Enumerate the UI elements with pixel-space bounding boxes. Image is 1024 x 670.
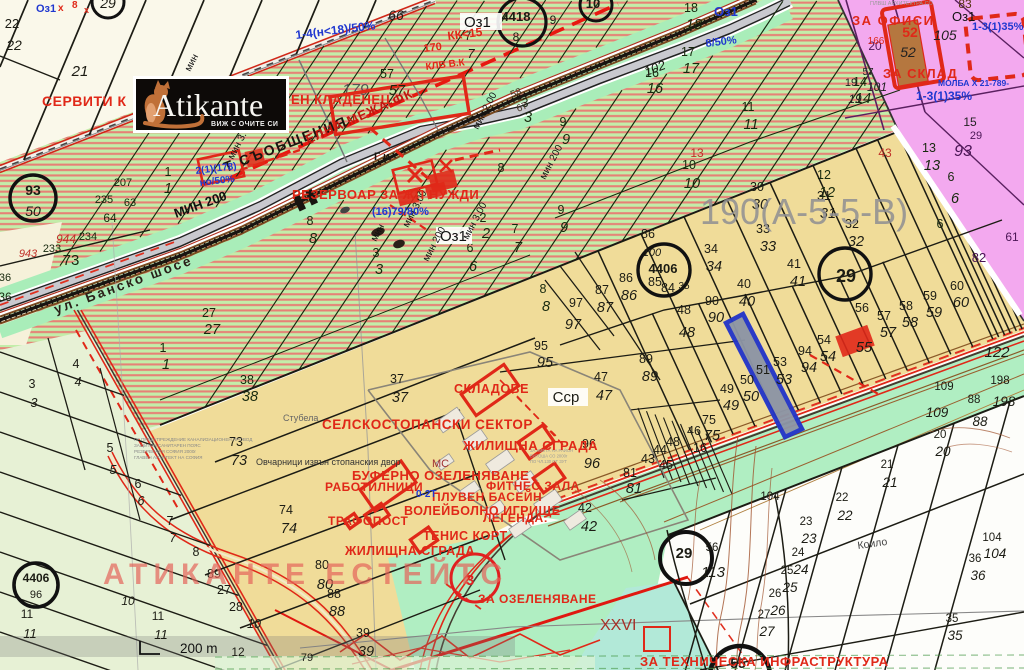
svg-text:3: 3 <box>31 396 38 410</box>
svg-text:57: 57 <box>880 325 897 341</box>
svg-text:7: 7 <box>467 46 475 61</box>
svg-text:22: 22 <box>836 508 853 523</box>
svg-text:19: 19 <box>845 77 857 89</box>
svg-text:86: 86 <box>619 271 633 285</box>
svg-text:42: 42 <box>578 501 592 515</box>
svg-text:Сср: Сср <box>553 389 580 406</box>
svg-text:27: 27 <box>758 609 771 621</box>
svg-text:55: 55 <box>856 340 873 356</box>
svg-text:27: 27 <box>202 306 216 320</box>
svg-text:93: 93 <box>25 182 41 198</box>
svg-text:СЕРВИТИ К: СЕРВИТИ К <box>42 93 127 109</box>
svg-text:47: 47 <box>594 370 608 384</box>
svg-text:50: 50 <box>740 373 754 387</box>
svg-text:34: 34 <box>704 242 718 256</box>
svg-text:100: 100 <box>643 247 662 259</box>
svg-text:7: 7 <box>514 240 523 256</box>
svg-text:88: 88 <box>972 414 988 429</box>
svg-text:4406: 4406 <box>649 261 678 276</box>
svg-text:16: 16 <box>647 81 664 97</box>
svg-text:23: 23 <box>800 516 813 528</box>
svg-text:22: 22 <box>5 37 22 53</box>
svg-text:95: 95 <box>534 339 548 353</box>
svg-text:57: 57 <box>877 309 891 323</box>
svg-text:93: 93 <box>954 143 972 160</box>
svg-text:24: 24 <box>792 547 805 559</box>
svg-text:234: 234 <box>79 231 97 243</box>
svg-text:СКЛАДОВЕ: СКЛАДОВЕ <box>454 382 529 396</box>
svg-text:ВИЖ С ОЧИТЕ СИ: ВИЖ С ОЧИТЕ СИ <box>211 121 278 128</box>
svg-text:60: 60 <box>953 295 969 311</box>
svg-text:12: 12 <box>817 168 831 182</box>
svg-text:Оз1: Оз1 <box>36 3 56 15</box>
svg-text:х: х <box>58 3 64 14</box>
svg-text:1: 1 <box>162 357 170 373</box>
svg-text:39: 39 <box>358 644 374 660</box>
svg-text:18: 18 <box>684 1 698 15</box>
svg-text:24: 24 <box>792 562 808 577</box>
svg-text:54: 54 <box>820 349 836 365</box>
svg-text:46: 46 <box>687 424 701 438</box>
svg-text:61: 61 <box>1005 230 1019 244</box>
svg-text:8: 8 <box>193 545 200 559</box>
svg-text:21: 21 <box>71 63 89 80</box>
svg-text:74: 74 <box>281 521 297 537</box>
svg-text:53: 53 <box>773 355 787 369</box>
svg-text:32: 32 <box>848 234 864 250</box>
svg-text:26: 26 <box>769 588 782 600</box>
svg-text:86: 86 <box>641 227 655 241</box>
svg-text:3: 3 <box>524 110 532 126</box>
svg-text:59: 59 <box>923 289 937 303</box>
svg-text:12: 12 <box>231 645 245 659</box>
svg-text:21: 21 <box>881 459 894 471</box>
svg-text:82: 82 <box>972 250 986 265</box>
svg-text:17: 17 <box>681 45 695 59</box>
svg-text:53: 53 <box>776 372 792 388</box>
svg-text:50: 50 <box>743 389 759 405</box>
svg-text:41: 41 <box>790 274 806 290</box>
svg-text:190(А-5-5-В): 190(А-5-5-В) <box>700 191 908 232</box>
svg-text:94: 94 <box>801 360 817 376</box>
svg-text:198: 198 <box>993 394 1016 409</box>
svg-text:22: 22 <box>836 492 849 504</box>
svg-text:16: 16 <box>693 441 707 455</box>
svg-text:23: 23 <box>800 531 817 546</box>
svg-text:200 m: 200 m <box>180 641 218 656</box>
svg-text:81: 81 <box>626 481 642 497</box>
svg-text:Стубела: Стубела <box>283 413 318 423</box>
svg-text:10: 10 <box>682 158 696 172</box>
svg-text:4418: 4418 <box>502 9 531 24</box>
svg-text:9: 9 <box>560 220 568 236</box>
svg-text:ЖИЛИЩНА СГРАДА: ЖИЛИЩНА СГРАДА <box>462 438 598 453</box>
svg-text:РЕЗЕРВОАРИ СОФИЯ 2000г: РЕЗЕРВОАРИ СОФИЯ 2000г <box>134 449 196 454</box>
svg-text:96: 96 <box>30 589 42 601</box>
svg-text:22: 22 <box>5 16 19 31</box>
svg-text:ЗА ТЕХНИЧЕСКА ИНФРАСТРУКТУРА: ЗА ТЕХНИЧЕСКА ИНФРАСТРУКТУРА <box>640 654 889 669</box>
svg-text:ВИТОША СО 2000г: ВИТОША СО 2000г <box>530 454 568 459</box>
svg-text:37: 37 <box>392 390 409 406</box>
svg-text:6: 6 <box>135 477 142 491</box>
svg-text:11: 11 <box>23 626 37 641</box>
svg-text:35: 35 <box>678 281 690 292</box>
svg-text:88: 88 <box>329 604 345 620</box>
svg-text:66: 66 <box>388 7 404 23</box>
svg-text:51: 51 <box>756 363 770 377</box>
svg-text:81: 81 <box>623 466 637 480</box>
svg-text:6: 6 <box>937 217 944 231</box>
svg-text:ТРАФОПОСТ: ТРАФОПОСТ <box>328 514 409 528</box>
svg-text:9: 9 <box>560 115 567 129</box>
svg-text:4: 4 <box>75 375 82 389</box>
svg-text:44: 44 <box>653 443 667 457</box>
svg-text:ПЛВШ АРХИТЕКТРА СО: ПЛВШ АРХИТЕКТРА СО <box>870 1 933 7</box>
svg-text:79: 79 <box>301 652 313 664</box>
svg-text:56: 56 <box>855 301 869 315</box>
svg-text:7: 7 <box>512 222 519 236</box>
svg-text:57: 57 <box>380 67 394 81</box>
svg-text:Ги: Ги <box>374 151 393 163</box>
svg-text:57: 57 <box>862 67 874 78</box>
svg-text:6: 6 <box>469 259 478 275</box>
svg-text:4: 4 <box>73 357 80 371</box>
svg-text:89: 89 <box>639 352 653 366</box>
svg-text:1-3(1)35%: 1-3(1)35% <box>916 89 972 103</box>
svg-text:36: 36 <box>0 290 12 304</box>
svg-text:9: 9 <box>562 132 570 148</box>
svg-text:4406: 4406 <box>23 571 50 585</box>
svg-text:96: 96 <box>584 456 601 472</box>
svg-text:38: 38 <box>242 389 258 405</box>
svg-text:198: 198 <box>990 375 1009 387</box>
svg-text:944: 944 <box>56 232 76 246</box>
svg-text:Atikante: Atikante <box>153 87 263 123</box>
svg-text:6: 6 <box>138 494 145 508</box>
svg-text:ГЛАВЕН АРХИТЕКТ НА СОФИЯ: ГЛАВЕН АРХИТЕКТ НА СОФИЯ <box>134 455 203 460</box>
svg-text:50: 50 <box>25 203 41 219</box>
svg-text:166: 166 <box>868 36 885 47</box>
svg-text:0-2Т: 0-2Т <box>416 489 437 500</box>
svg-text:37: 37 <box>390 372 404 386</box>
svg-text:943: 943 <box>19 248 38 260</box>
svg-text:11: 11 <box>742 100 755 114</box>
svg-text:89: 89 <box>642 369 658 385</box>
svg-text:РАБОТИЛНИЦИ: РАБОТИЛНИЦИ <box>325 480 423 494</box>
svg-text:49: 49 <box>723 398 739 414</box>
svg-text:88: 88 <box>968 394 981 406</box>
svg-text:101: 101 <box>867 80 887 94</box>
svg-text:48: 48 <box>679 325 695 341</box>
svg-text:86: 86 <box>621 288 638 304</box>
svg-text:ЗА ЖП НУЖДИ: ЗА ЖП НУЖДИ <box>380 187 479 202</box>
svg-text:48: 48 <box>666 435 680 449</box>
svg-text:33: 33 <box>760 239 776 255</box>
svg-text:25: 25 <box>781 565 794 577</box>
svg-text:АТИКАНТЕ ЕСТЕЙТС: АТИКАНТЕ ЕСТЕЙТС <box>103 557 508 591</box>
svg-text:54: 54 <box>817 333 831 347</box>
svg-text:109: 109 <box>926 405 949 420</box>
svg-text:90: 90 <box>708 310 724 326</box>
svg-text:95: 95 <box>537 355 554 371</box>
svg-text:1: 1 <box>164 181 172 197</box>
svg-text:ЗА ОЗЕЛЕНЯВАНЕ: ЗА ОЗЕЛЕНЯВАНЕ <box>478 592 597 606</box>
svg-text:97: 97 <box>569 296 583 310</box>
svg-text:47: 47 <box>596 388 613 404</box>
svg-text:3: 3 <box>375 262 383 278</box>
svg-text:8: 8 <box>498 161 505 175</box>
svg-text:8: 8 <box>542 299 550 315</box>
svg-text:13: 13 <box>922 141 936 155</box>
svg-text:17: 17 <box>683 61 700 77</box>
svg-text:97: 97 <box>565 317 582 333</box>
svg-text:29: 29 <box>99 0 116 11</box>
svg-text:73: 73 <box>63 252 80 269</box>
svg-text:56: 56 <box>706 542 719 554</box>
svg-text:(16)79/80%: (16)79/80% <box>372 206 429 218</box>
svg-text:2: 2 <box>481 226 490 242</box>
svg-text:36: 36 <box>0 272 11 284</box>
svg-text:49: 49 <box>720 382 734 396</box>
svg-text:15: 15 <box>963 115 977 129</box>
svg-text:8: 8 <box>309 231 317 247</box>
svg-text:10: 10 <box>684 176 700 192</box>
svg-text:45: 45 <box>659 458 673 472</box>
svg-text:8: 8 <box>307 214 314 228</box>
svg-text:ЖИЛИЩНА СГРАДА: ЖИЛИЩНА СГРАДА <box>344 544 475 558</box>
svg-text:43: 43 <box>878 146 892 160</box>
svg-text:11: 11 <box>152 609 165 623</box>
svg-text:3: 3 <box>373 246 380 260</box>
svg-text:104: 104 <box>984 546 1007 561</box>
svg-text:41: 41 <box>787 257 801 271</box>
svg-text:5: 5 <box>107 441 114 455</box>
svg-text:20: 20 <box>934 429 947 441</box>
svg-text:18: 18 <box>686 17 702 33</box>
svg-text:13: 13 <box>690 146 704 160</box>
svg-text:38: 38 <box>240 373 254 387</box>
svg-text:104: 104 <box>760 491 780 503</box>
svg-text:29: 29 <box>836 266 856 286</box>
svg-text:10: 10 <box>586 0 600 11</box>
svg-text:7: 7 <box>170 531 178 545</box>
svg-text:75: 75 <box>702 413 716 427</box>
svg-text:5: 5 <box>110 463 117 477</box>
svg-text:105: 105 <box>933 27 957 43</box>
svg-text:1-3(1)35%: 1-3(1)35% <box>972 21 1024 33</box>
svg-text:11: 11 <box>743 117 758 133</box>
svg-text:10: 10 <box>121 594 135 608</box>
svg-text:84: 84 <box>661 281 675 295</box>
svg-text:10: 10 <box>247 617 261 631</box>
svg-text:40: 40 <box>737 277 751 291</box>
svg-text:МОЛБА X 21-789-: МОЛБА X 21-789- <box>938 78 1009 88</box>
svg-text:27: 27 <box>203 322 221 338</box>
svg-text:74: 74 <box>279 503 293 517</box>
svg-text:20: 20 <box>934 444 951 459</box>
svg-text:26: 26 <box>769 603 786 618</box>
svg-text:ПО ЧЛ.130 ОТ ЗУТ: ПО ЧЛ.130 ОТ ЗУТ <box>530 459 567 464</box>
svg-text:34: 34 <box>706 259 722 275</box>
svg-text:87: 87 <box>595 283 609 297</box>
svg-text:7: 7 <box>167 514 174 528</box>
svg-text:ПГ ПРЕДУПРЕЖДЕНИЕ КАНАЛИЗАЦИОН: ПГ ПРЕДУПРЕЖДЕНИЕ КАНАЛИЗАЦИОНЕН ПРОВОД <box>134 437 253 442</box>
svg-text:29: 29 <box>676 545 693 562</box>
svg-text:8: 8 <box>513 30 520 44</box>
svg-text:11: 11 <box>154 627 168 642</box>
svg-text:109: 109 <box>934 381 953 393</box>
svg-text:170: 170 <box>423 41 443 55</box>
svg-text:60: 60 <box>950 279 964 293</box>
svg-text:58: 58 <box>899 299 913 313</box>
svg-text:8: 8 <box>72 0 78 11</box>
svg-text:73: 73 <box>231 453 247 469</box>
svg-text:ЗА ОФИСИ: ЗА ОФИСИ <box>852 13 934 28</box>
svg-text:Оз1: Оз1 <box>714 4 738 19</box>
svg-text:104: 104 <box>982 532 1002 544</box>
svg-text:ЛЕГЕНДА:: ЛЕГЕНДА: <box>483 511 548 525</box>
svg-text:63: 63 <box>124 197 136 209</box>
svg-text:85: 85 <box>648 275 662 289</box>
svg-text:58: 58 <box>902 315 918 331</box>
svg-text:29: 29 <box>970 130 982 142</box>
svg-text:39: 39 <box>356 626 370 640</box>
svg-text:21: 21 <box>881 475 897 490</box>
svg-text:36: 36 <box>969 553 982 565</box>
svg-text:РЕЗЕРВОАР: РЕЗЕРВОАР <box>292 187 376 202</box>
svg-text:235: 235 <box>95 194 113 206</box>
svg-text:40: 40 <box>739 294 755 310</box>
svg-text:27: 27 <box>758 624 775 639</box>
svg-text:94: 94 <box>798 344 812 358</box>
svg-text:87: 87 <box>597 300 614 316</box>
svg-text:Овчарници извън стопанския дво: Овчарници извън стопанския двор <box>256 457 401 467</box>
svg-text:48: 48 <box>677 303 691 317</box>
svg-text:207: 207 <box>114 177 132 189</box>
svg-text:64: 64 <box>103 211 117 225</box>
svg-text:6: 6 <box>951 191 960 207</box>
svg-text:122: 122 <box>984 344 1010 361</box>
svg-text:СЕЛСКОСТОПАНСКИ СЕКТОР: СЕЛСКОСТОПАНСКИ СЕКТОР <box>322 417 533 432</box>
svg-text:13: 13 <box>924 158 940 174</box>
svg-text:9: 9 <box>558 203 565 217</box>
svg-text:19: 19 <box>848 92 862 106</box>
svg-text:х: х <box>84 5 89 15</box>
svg-text:28: 28 <box>229 600 243 614</box>
svg-text:113: 113 <box>701 564 726 581</box>
svg-text:3: 3 <box>29 377 36 391</box>
svg-text:35: 35 <box>946 613 959 625</box>
svg-text:1: 1 <box>160 341 167 355</box>
svg-text:42: 42 <box>581 519 597 535</box>
svg-text:ЗАЩИТЕН САНИТАРЕН ПОЯС: ЗАЩИТЕН САНИТАРЕН ПОЯС <box>134 443 201 448</box>
svg-text:90: 90 <box>705 294 719 308</box>
svg-text:9: 9 <box>550 13 557 27</box>
svg-text:36: 36 <box>970 568 986 583</box>
svg-text:6: 6 <box>948 170 955 184</box>
svg-text:35: 35 <box>947 628 963 643</box>
svg-text:1: 1 <box>165 165 172 179</box>
svg-text:59: 59 <box>926 305 942 321</box>
svg-text:52: 52 <box>900 44 916 60</box>
svg-text:XXVI: XXVI <box>600 617 636 634</box>
svg-text:11: 11 <box>21 607 34 621</box>
svg-text:ТЕНИС КОРТ: ТЕНИС КОРТ <box>423 529 508 543</box>
svg-text:ПЛУВЕН БАСЕЙН: ПЛУВЕН БАСЕЙН <box>432 489 542 504</box>
svg-text:8: 8 <box>540 282 547 296</box>
svg-text:25: 25 <box>781 580 798 595</box>
